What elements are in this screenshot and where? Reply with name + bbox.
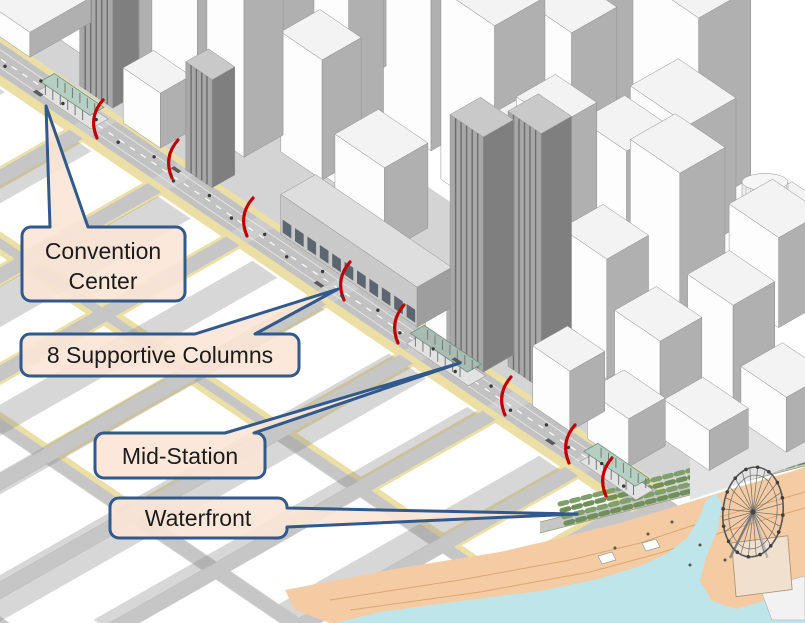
convention-center-label-line1: Convention xyxy=(45,238,161,264)
slide-canvas: Convention Center 8 Supportive Columns M… xyxy=(0,0,805,623)
convention-center-label-line2: Center xyxy=(68,268,137,294)
aerial-city-rendering: Convention Center 8 Supportive Columns M… xyxy=(0,0,805,623)
building xyxy=(186,49,235,188)
building xyxy=(450,97,513,372)
mid-station-label: Mid-Station xyxy=(122,443,238,469)
supportive-columns-label: 8 Supportive Columns xyxy=(47,342,273,368)
waterfront-label: Waterfront xyxy=(145,505,252,531)
